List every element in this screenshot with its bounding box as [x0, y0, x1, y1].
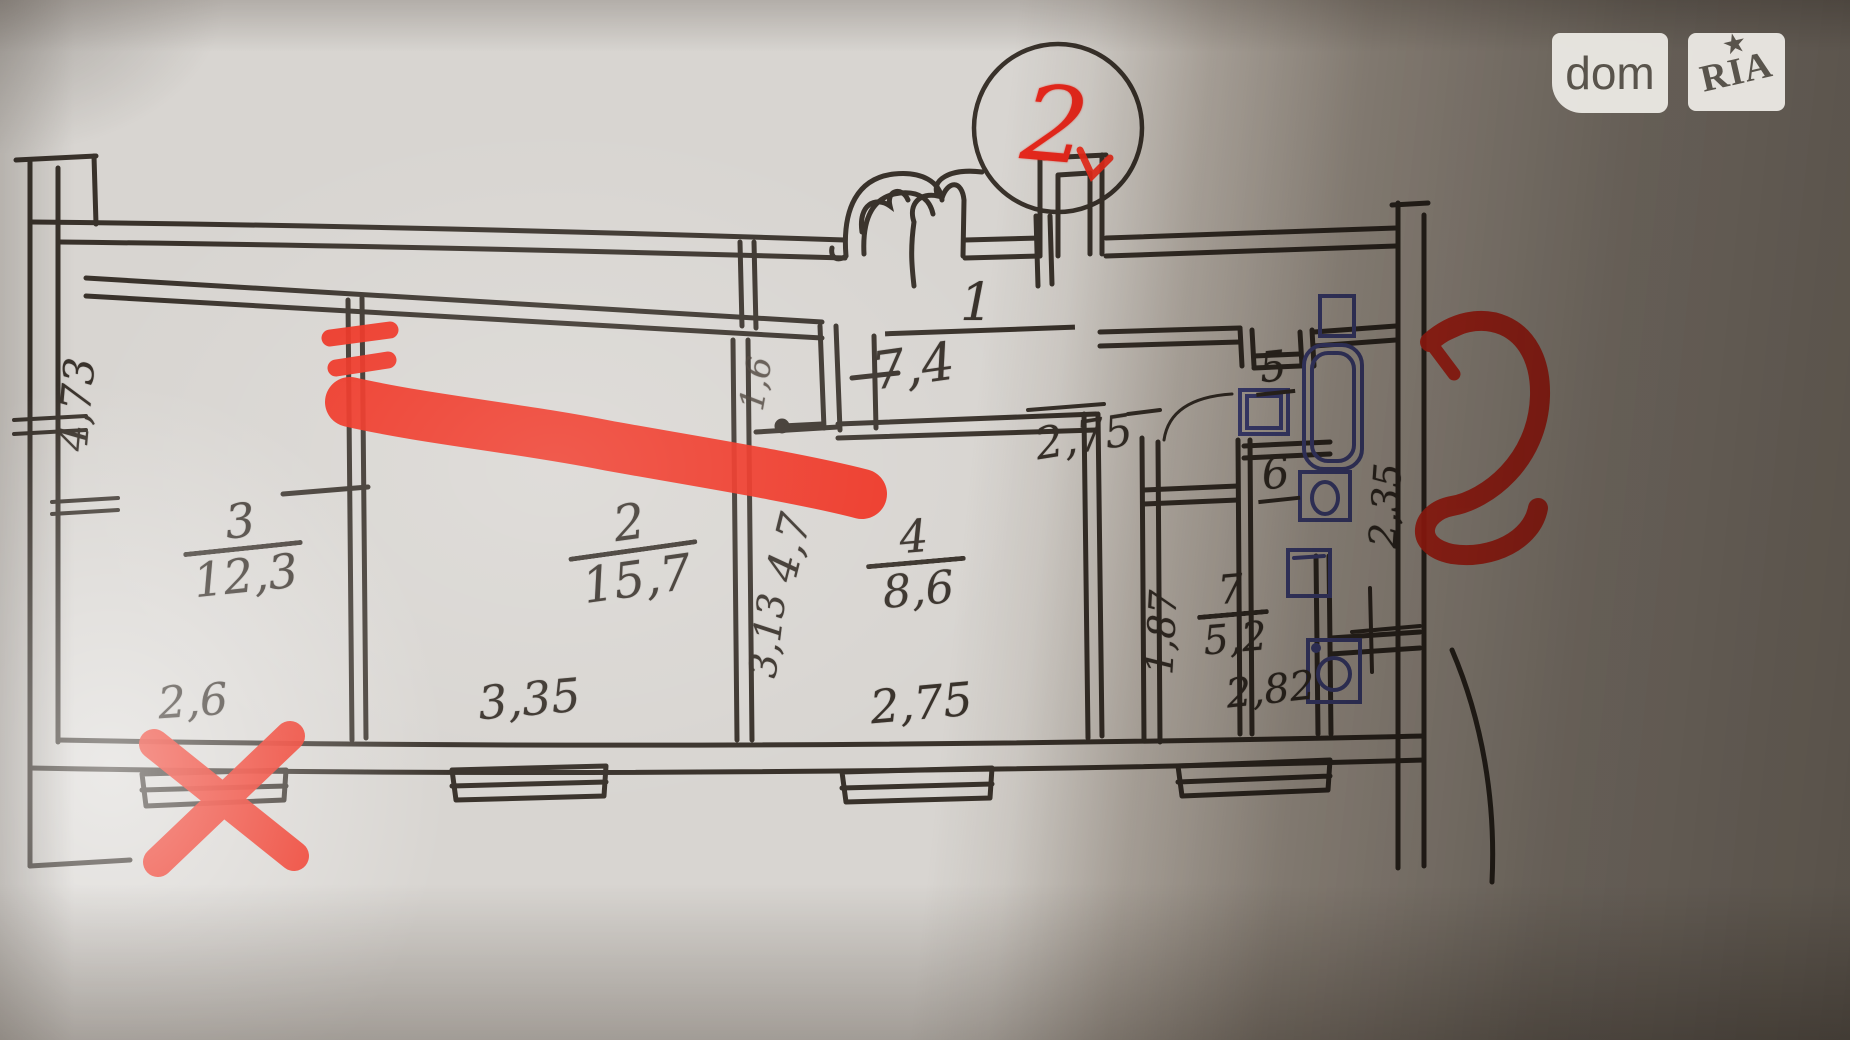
watermark-ria: ★ RIA — [1688, 33, 1785, 111]
room1-number: 1 — [960, 280, 993, 328]
left-wall-height-dim: 4,73 — [52, 338, 102, 471]
watermark-dom: dom — [1552, 33, 1668, 113]
red-strike-line — [350, 402, 862, 494]
red-circled-number: 2 — [1017, 61, 1094, 188]
watermark-dom-text: dom — [1565, 46, 1654, 100]
room3-area: 12,3 — [169, 547, 323, 606]
room2-label: 2 15,7 — [552, 490, 715, 612]
bath-width-dim: 2,35 — [1364, 444, 1407, 566]
room4-width-dim: 2,75 — [868, 678, 974, 729]
bath-depth-dim: 1,87 — [1141, 572, 1182, 694]
red-marks — [154, 150, 1540, 862]
room2-width-dim: 3,35 — [476, 674, 582, 725]
room7-number: 7 — [1186, 568, 1275, 612]
room7-area: 5,2 — [1191, 617, 1280, 661]
room3-width-dim: 2,6 — [157, 680, 230, 725]
watermark-ria-inner: ★ RIA — [1696, 42, 1777, 101]
watermark-logo: dom ★ RIA — [1552, 33, 1785, 113]
room7-label: 7 5,2 — [1186, 568, 1279, 661]
red-equals-bottom — [336, 360, 388, 368]
toilet-width-dim: 2,82 — [1224, 667, 1316, 713]
room3-label: 3 12,3 — [163, 492, 322, 606]
red-equals-top — [330, 330, 390, 338]
floor-plan-photo: 2 3 12,3 2 15,7 4 8,6 7 5,2 1 7,4 2,75 5… — [0, 0, 1850, 1040]
room1-area: 7,4 — [869, 338, 958, 397]
room1-width-dim: 2,75 — [1032, 411, 1135, 466]
room5-number: 5 — [1252, 346, 1295, 396]
room4-label: 4 8,6 — [852, 511, 980, 616]
star-icon: ★ — [1721, 27, 1749, 60]
room6-number: 6 — [1254, 452, 1301, 505]
